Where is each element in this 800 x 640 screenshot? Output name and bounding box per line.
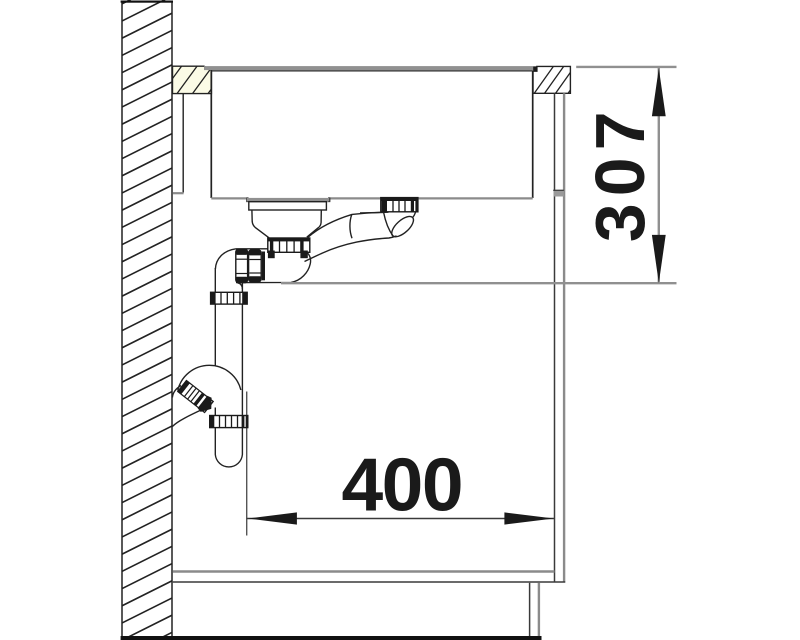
svg-text:400: 400 [341,443,462,527]
svg-text:307: 307 [581,104,659,242]
